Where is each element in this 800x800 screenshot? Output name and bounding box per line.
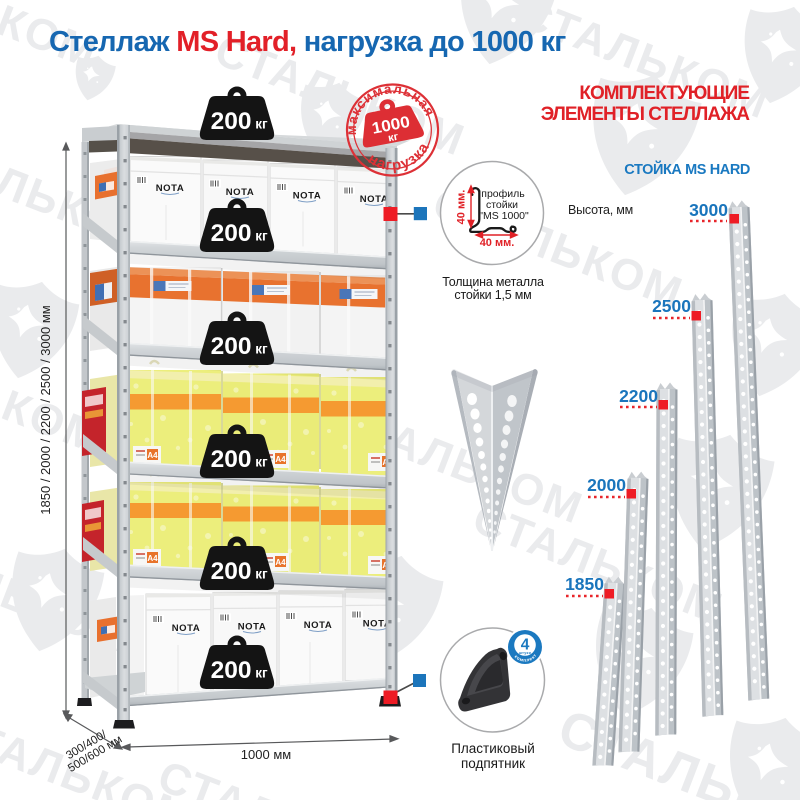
svg-text:NOTA: NOTA <box>156 183 185 194</box>
svg-text:ЭЛЕМЕНТЫ СТЕЛЛАЖА: ЭЛЕМЕНТЫ СТЕЛЛАЖА <box>541 104 751 125</box>
svg-text:40 мм.: 40 мм. <box>456 190 468 225</box>
svg-text:Пластиковый: Пластиковый <box>451 741 535 756</box>
svg-text:Стеллаж MS Hard, нагрузка до 1: Стеллаж MS Hard, нагрузка до 1000 кг <box>49 26 566 58</box>
svg-text:штуки: штуки <box>519 651 531 655</box>
svg-text:"MS 1000": "MS 1000" <box>479 210 529 222</box>
svg-text:NOTA: NOTA <box>360 194 389 205</box>
svg-text:2500: 2500 <box>652 296 691 316</box>
svg-text:A4: A4 <box>275 455 286 464</box>
svg-text:стойки 1,5 мм: стойки 1,5 мм <box>454 288 531 302</box>
svg-text:NOTA: NOTA <box>293 191 322 202</box>
svg-text:Толщина металла: Толщина металла <box>442 275 544 289</box>
svg-text:NOTA: NOTA <box>238 622 267 633</box>
svg-text:A4: A4 <box>275 558 286 567</box>
svg-text:NOTA: NOTA <box>304 620 333 631</box>
svg-text:NOTA: NOTA <box>172 623 201 634</box>
svg-text:A4: A4 <box>147 554 158 563</box>
svg-text:2000: 2000 <box>587 475 626 495</box>
svg-text:Высота, мм: Высота, мм <box>568 203 633 217</box>
svg-text:2200: 2200 <box>619 386 658 406</box>
svg-text:1850 / 2000 / 2200 / 2500 / 30: 1850 / 2000 / 2200 / 2500 / 3000 мм <box>38 305 53 514</box>
svg-text:1850: 1850 <box>565 574 604 594</box>
svg-text:3000: 3000 <box>689 200 728 220</box>
svg-text:подпятник: подпятник <box>461 756 525 771</box>
svg-text:1000 мм: 1000 мм <box>241 747 291 762</box>
svg-text:СТОЙКА MS HARD: СТОЙКА MS HARD <box>624 160 750 178</box>
svg-text:40 мм.: 40 мм. <box>480 237 515 249</box>
svg-text:A4: A4 <box>147 451 158 460</box>
svg-text:NOTA: NOTA <box>226 187 255 198</box>
svg-text:КОМПЛЕКТУЮЩИЕ: КОМПЛЕКТУЮЩИЕ <box>579 83 749 104</box>
